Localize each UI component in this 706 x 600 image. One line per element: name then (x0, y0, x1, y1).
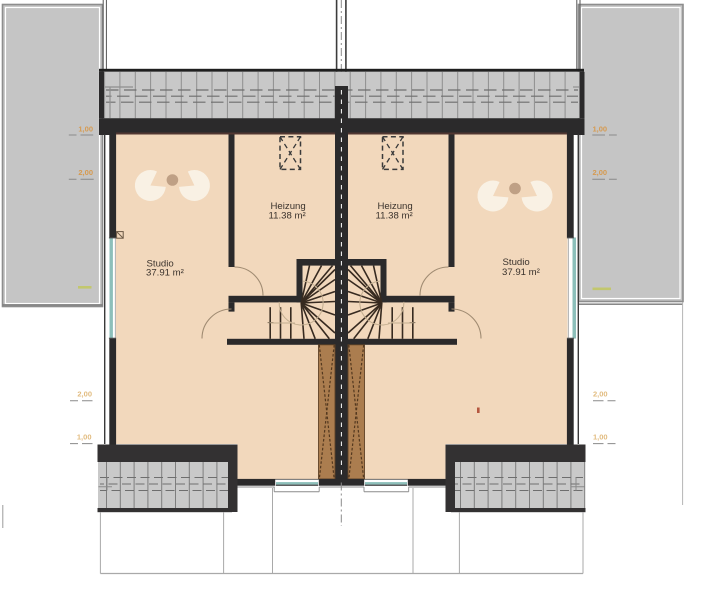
svg-text:2,00: 2,00 (78, 168, 93, 177)
svg-text:2,00: 2,00 (593, 390, 608, 399)
svg-text:11.38 m²: 11.38 m² (376, 211, 414, 222)
svg-text:1,00: 1,00 (593, 433, 608, 442)
svg-text:1,00: 1,00 (78, 125, 93, 134)
svg-text:37.91 m²: 37.91 m² (502, 267, 541, 278)
svg-text:2,00: 2,00 (593, 168, 608, 177)
svg-text:1,00: 1,00 (77, 433, 92, 442)
svg-text:2,00: 2,00 (77, 390, 92, 399)
svg-text:37.91 m²: 37.91 m² (146, 268, 185, 279)
svg-text:11.38 m²: 11.38 m² (269, 211, 307, 222)
svg-text:1,00: 1,00 (593, 125, 608, 134)
